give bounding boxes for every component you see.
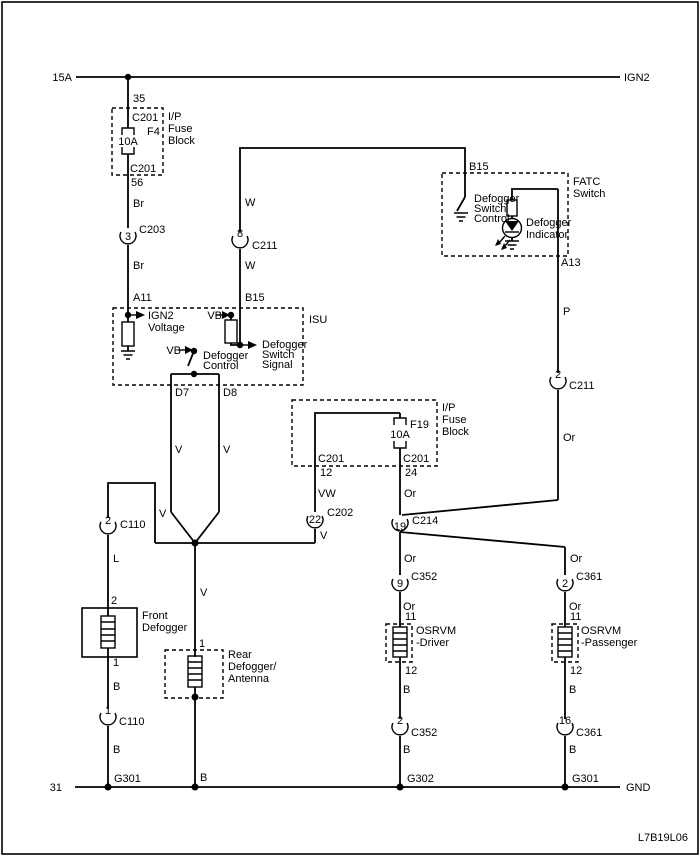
wire-label-b: B bbox=[569, 684, 576, 696]
c110-2-name: C110 bbox=[120, 519, 145, 531]
osrvm-driver-element bbox=[393, 627, 407, 657]
pin-24: 24 bbox=[405, 467, 417, 479]
c352-2-name: C352 bbox=[411, 727, 437, 739]
fatc-indicator-label: Defogger bbox=[526, 217, 572, 229]
osrvm-driver-name: OSRVM bbox=[416, 625, 456, 637]
wire-d7-d8-outputs bbox=[171, 374, 219, 543]
isu-pin-d7: D7 bbox=[175, 387, 189, 399]
fuse-f19-rating: 10A bbox=[390, 429, 410, 441]
front-defogger-pin-top: 2 bbox=[111, 595, 117, 607]
c203-pin: 3 bbox=[125, 231, 131, 243]
c211-2-name: C211 bbox=[569, 380, 594, 392]
c110-1-pin: 1 bbox=[105, 705, 111, 717]
osrvm-passenger-element bbox=[558, 627, 572, 657]
c361-2-pin: 2 bbox=[562, 578, 568, 590]
c202-pin: 22 bbox=[309, 514, 321, 526]
fb1-label: I/P bbox=[168, 111, 181, 123]
fb2-conn-right: C201 bbox=[403, 453, 429, 465]
isu-ign2-voltage-resistor bbox=[121, 322, 135, 359]
fatc-pin-a13: A13 bbox=[561, 257, 581, 269]
osrvm-driver-pin-top: 11 bbox=[405, 611, 416, 623]
fuse-f4-name: F4 bbox=[147, 126, 160, 138]
isu-control-label: Control bbox=[203, 360, 238, 372]
c352-9-name: C352 bbox=[411, 571, 437, 583]
c211-8-pin: 8 bbox=[237, 228, 243, 240]
osrvm-passenger-name: -Passenger bbox=[581, 637, 638, 649]
fb2-label: Block bbox=[442, 426, 469, 438]
fatc-defogger-switch-symbol bbox=[454, 197, 468, 221]
ground-rail-name: GND bbox=[626, 782, 651, 794]
wire-diagonal-into-c214 bbox=[402, 500, 558, 515]
c361-16-pin: 16 bbox=[559, 715, 571, 727]
ground-icon bbox=[505, 241, 519, 249]
osrvm-passenger-name: OSRVM bbox=[581, 625, 621, 637]
osrvm-driver-pin-bottom: 12 bbox=[405, 665, 417, 677]
front-defogger-name: Defogger bbox=[142, 622, 188, 634]
c361-16-name: C361 bbox=[576, 727, 602, 739]
wire-label-p: P bbox=[563, 306, 570, 318]
isu-ign2-voltage: IGN2 bbox=[148, 310, 174, 322]
junction-dots bbox=[105, 74, 569, 791]
wire-label-w: W bbox=[245, 260, 256, 272]
fb1-label: Fuse bbox=[168, 123, 192, 135]
c214-pin: 19 bbox=[394, 521, 406, 533]
fb2-label: I/P bbox=[442, 402, 455, 414]
wire-label-w: W bbox=[245, 197, 256, 209]
rear-defogger-name: Defogger/ bbox=[228, 661, 277, 673]
fatc-switch-control: Control bbox=[474, 213, 509, 225]
power-rail-rating: 15A bbox=[52, 72, 72, 84]
front-defogger-element bbox=[101, 616, 115, 648]
power-rail-name: IGN2 bbox=[624, 72, 650, 84]
osrvm-driver-box bbox=[386, 624, 412, 662]
arrow-right-icon bbox=[136, 311, 145, 319]
osrvm-passenger-pin-bottom: 12 bbox=[570, 665, 582, 677]
wire-label-v: V bbox=[200, 587, 208, 599]
labels: 15A IGN2 35 C201 F4 10A C201 56 I/P Fuse… bbox=[50, 72, 688, 844]
fatc-pin-b15: B15 bbox=[469, 161, 489, 173]
wire-diagonal-to-passenger bbox=[400, 532, 565, 547]
rear-defogger-name: Antenna bbox=[228, 673, 270, 685]
wire-label-b: B bbox=[403, 684, 410, 696]
fuse-f19-name: F19 bbox=[410, 419, 429, 431]
front-defogger-pin-bottom: 1 bbox=[113, 657, 119, 669]
wire-label-b: B bbox=[403, 744, 410, 756]
isu-vb-pullup: VB bbox=[207, 310, 222, 322]
fb2-label: Fuse bbox=[442, 414, 466, 426]
c361-2-name: C361 bbox=[576, 571, 602, 583]
wire-label-b: B bbox=[113, 681, 120, 693]
pin-56: 56 bbox=[131, 177, 143, 189]
wire-label-or: Or bbox=[563, 432, 576, 444]
isu-name: ISU bbox=[309, 314, 327, 326]
c110-1-name: C110 bbox=[119, 716, 144, 728]
fb1-label: Block bbox=[168, 135, 195, 147]
pin-12: 12 bbox=[320, 467, 332, 479]
wire-label-b: B bbox=[569, 744, 576, 756]
wiring-diagram-page: 15A IGN2 35 C201 F4 10A C201 56 I/P Fuse… bbox=[0, 0, 700, 856]
ground-icon bbox=[454, 213, 468, 221]
c211-8-name: C211 bbox=[252, 240, 277, 252]
rear-defogger-name: Rear bbox=[228, 649, 252, 661]
wire-label-or: Or bbox=[404, 553, 417, 565]
isu-pullup-resistor bbox=[225, 320, 237, 343]
osrvm-passenger-pin-top: 11 bbox=[570, 611, 581, 623]
isu-pin-b15: B15 bbox=[245, 292, 265, 304]
c203-name: C203 bbox=[139, 224, 165, 236]
c202-name: C202 bbox=[327, 507, 353, 519]
ground-g301-right: G301 bbox=[572, 773, 599, 785]
fb2-conn-left: C201 bbox=[318, 453, 344, 465]
isu-pin-d8: D8 bbox=[223, 387, 237, 399]
c211-2-pin: 2 bbox=[555, 369, 561, 381]
fatc-indicator-label: Indicator bbox=[526, 229, 569, 241]
ground-g302: G302 bbox=[407, 773, 434, 785]
wire-label-br: Br bbox=[133, 260, 144, 272]
arrow-right-icon bbox=[248, 341, 257, 349]
wire-label-v: V bbox=[223, 444, 231, 456]
rear-defogger-pin: 1 bbox=[199, 638, 205, 650]
pin-35: 35 bbox=[133, 93, 145, 105]
wire-label-v: V bbox=[175, 444, 183, 456]
isu-vb-control: VB bbox=[166, 345, 181, 357]
rear-defogger-element bbox=[188, 656, 202, 687]
wire-label-or: Or bbox=[404, 488, 417, 500]
fuse-f4-rating: 10A bbox=[118, 136, 138, 148]
ground-icon bbox=[121, 351, 135, 359]
doc-code: L7B19L06 bbox=[638, 832, 688, 844]
isu-switch-signal: Signal bbox=[262, 359, 293, 371]
fb1-conn-bottom: C201 bbox=[130, 163, 156, 175]
wire-label-b: B bbox=[113, 744, 120, 756]
wire-label-v: V bbox=[159, 508, 167, 520]
wire-label-v: V bbox=[320, 530, 328, 542]
fatc-name: FATC bbox=[573, 176, 600, 188]
fatc-name: Switch bbox=[573, 188, 605, 200]
c352-2-pin: 2 bbox=[397, 715, 403, 727]
front-defogger-name: Front bbox=[142, 610, 168, 622]
defogger-circuit-schematic: 15A IGN2 35 C201 F4 10A C201 56 I/P Fuse… bbox=[0, 0, 700, 856]
c352-9-pin: 9 bbox=[397, 578, 403, 590]
ground-g301-left: G301 bbox=[114, 773, 141, 785]
c214-name: C214 bbox=[412, 515, 438, 527]
wire-label-vw: VW bbox=[318, 488, 336, 500]
osrvm-passenger-box bbox=[552, 624, 578, 662]
fb1-conn-top: C201 bbox=[132, 112, 158, 124]
wire-label-or: Or bbox=[570, 553, 583, 565]
isu-ign2-voltage: Voltage bbox=[148, 322, 185, 334]
wire-runs bbox=[75, 77, 620, 787]
osrvm-driver-name: -Driver bbox=[416, 637, 449, 649]
c110-2-pin: 2 bbox=[105, 515, 111, 527]
wire-label-l: L bbox=[113, 553, 119, 565]
isu-pin-a11: A11 bbox=[133, 292, 152, 304]
wire-label-b: B bbox=[200, 772, 207, 784]
ground-rail-terminal: 31 bbox=[50, 782, 62, 794]
wire-label-br: Br bbox=[133, 198, 144, 210]
